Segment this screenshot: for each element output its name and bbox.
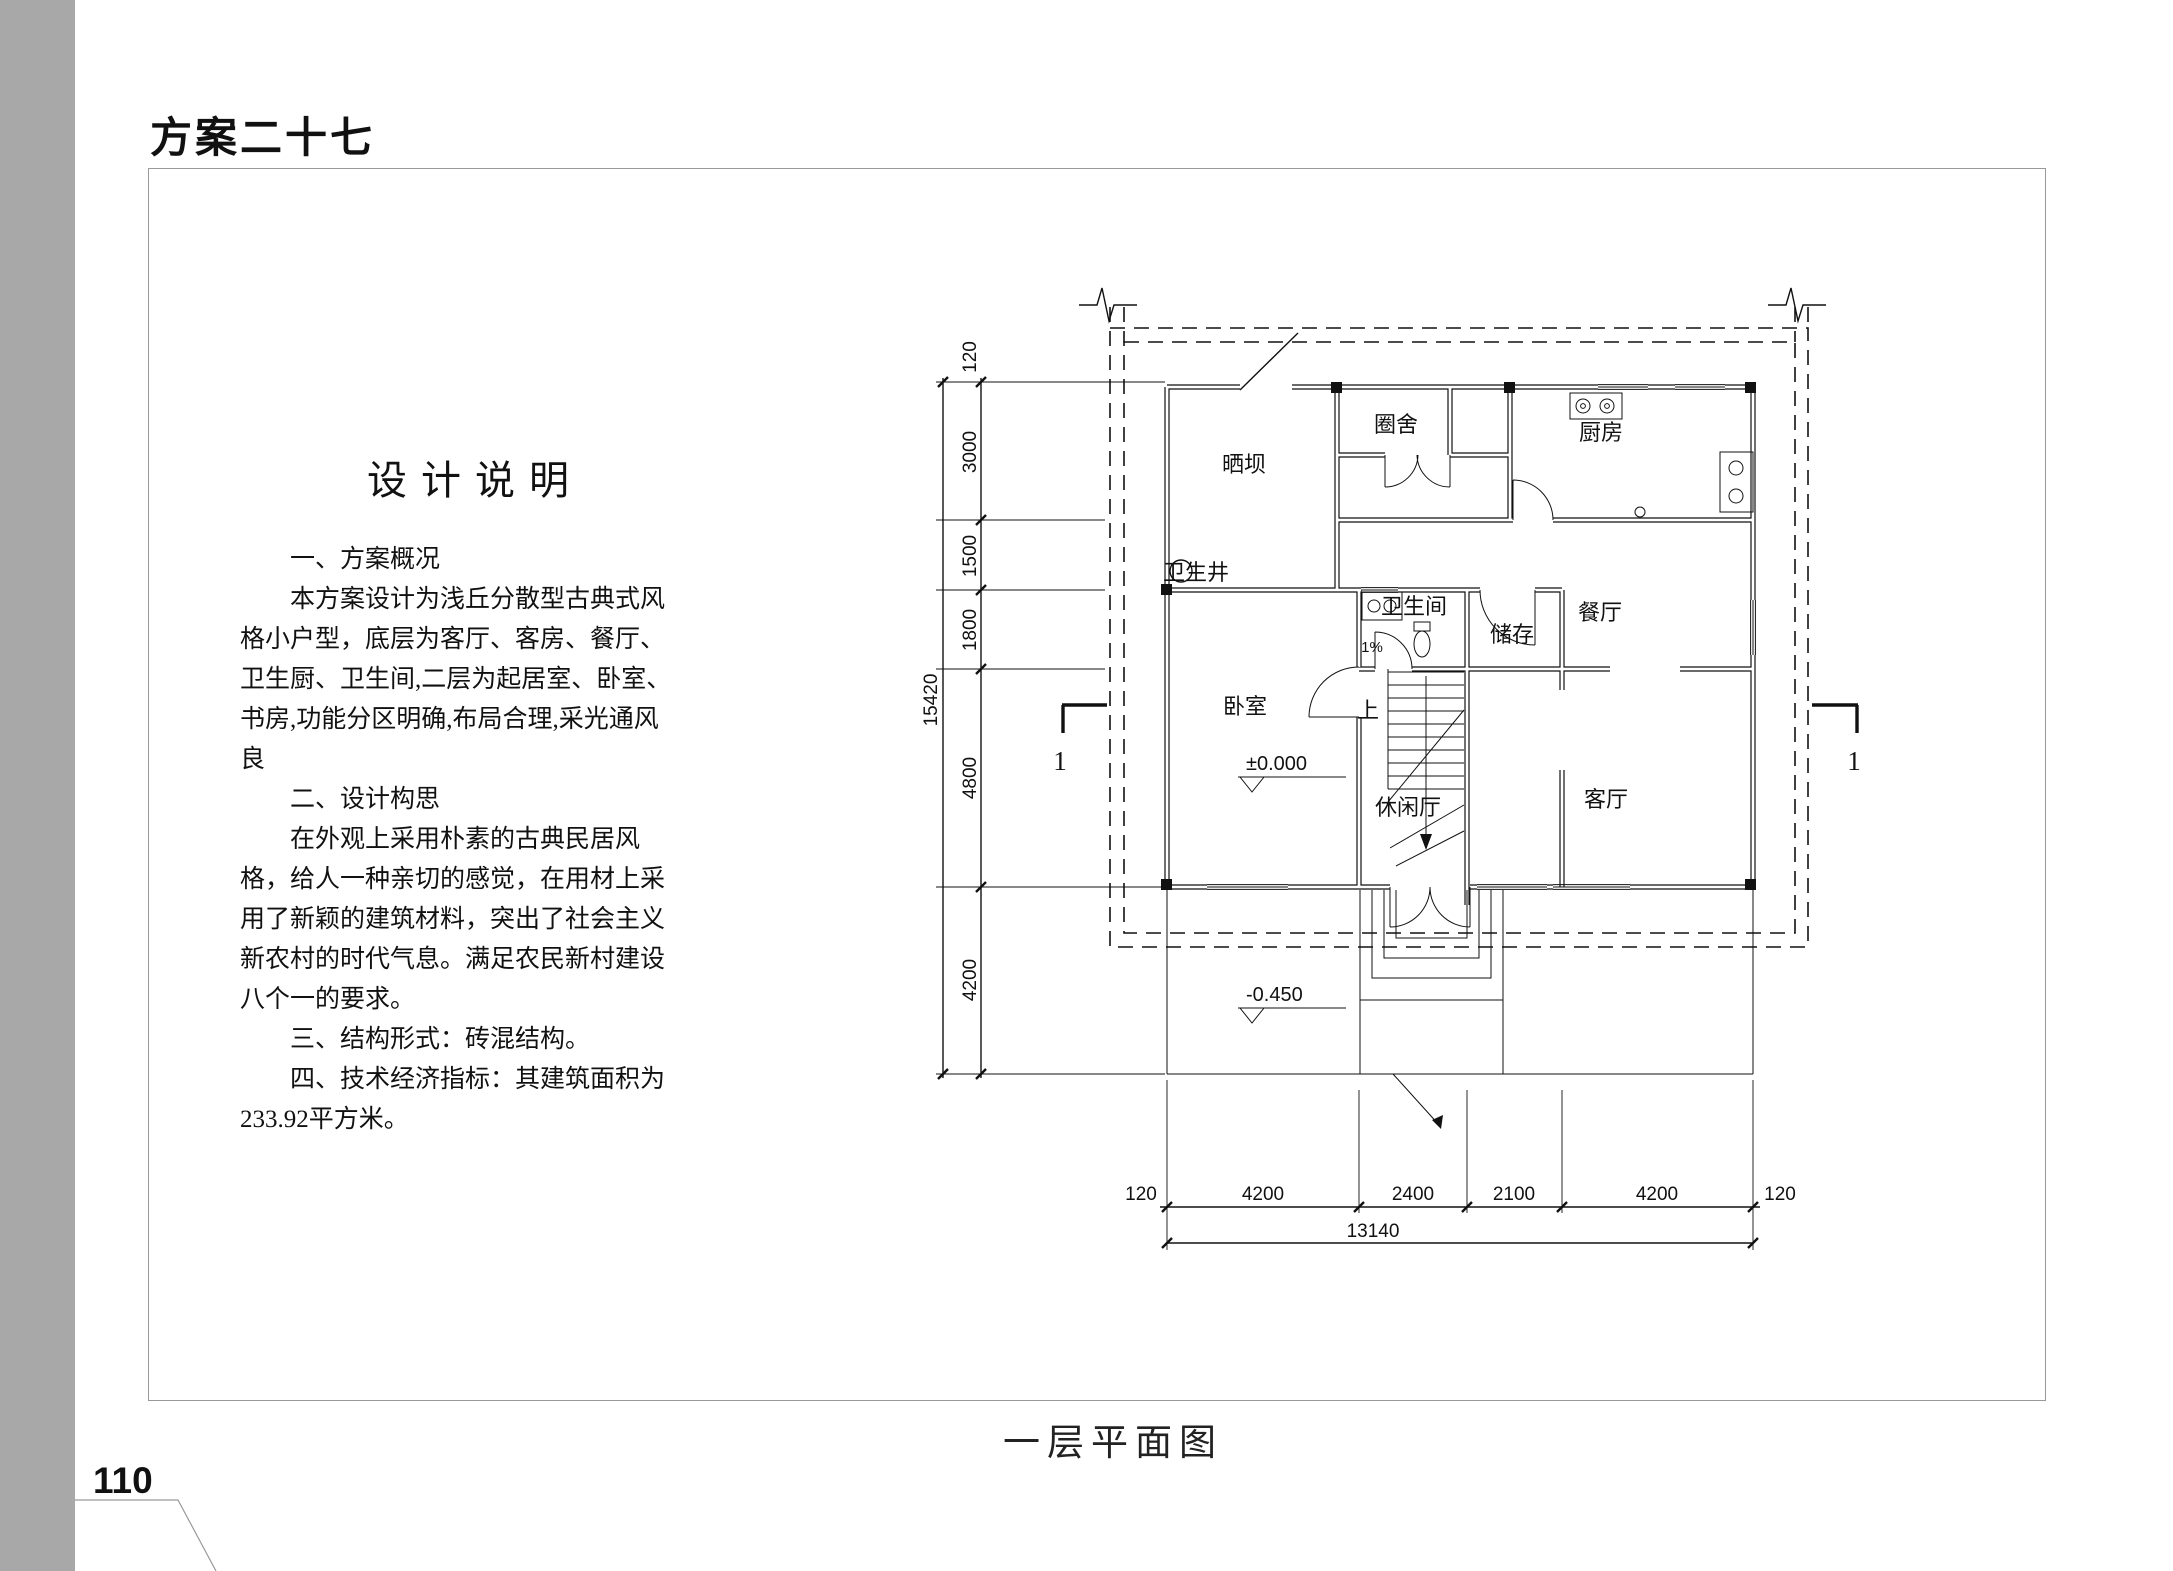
- slope-label: 1%: [1361, 639, 1383, 656]
- svg-text:15420: 15420: [921, 674, 942, 727]
- design-notes-line: 新农村的时代气息。满足农民新村建设: [240, 940, 710, 980]
- site-boundary-dashed: [1110, 307, 1808, 947]
- section-mark-right: 1: [1812, 705, 1861, 776]
- window-symbols: [1207, 385, 1755, 890]
- design-notes-line: 四、技术经济指标：其建筑面积为: [240, 1060, 710, 1100]
- room-label-bedroom: 卧室: [1223, 694, 1267, 719]
- book-page: 方案二十七 设计说明 一、方案概况 本方案设计为浅丘分散型古典式风 格小户型，底…: [0, 0, 2173, 1571]
- toilet-icon: [1414, 622, 1430, 657]
- design-notes-line: 格小户型，底层为客厅、客房、餐厅、: [240, 620, 710, 660]
- svg-text:120: 120: [960, 341, 981, 373]
- room-label-living-room: 客厅: [1584, 787, 1628, 812]
- svg-text:120: 120: [1764, 1184, 1796, 1205]
- svg-text:4200: 4200: [960, 959, 981, 1001]
- room-label-drying-yard: 晒坝: [1222, 452, 1266, 477]
- level-mark-ground: ±0.000: [1238, 753, 1346, 792]
- svg-text:1500: 1500: [960, 535, 981, 577]
- design-notes-line: 三、结构形式：砖混结构。: [240, 1020, 710, 1060]
- design-notes-line: 书房,功能分区明确,布局合理,采光通风: [240, 700, 710, 740]
- break-mark-left-icon: [1079, 288, 1137, 321]
- door-swings: [1309, 455, 1553, 927]
- design-notes-line: 二、设计构思: [240, 780, 710, 820]
- svg-text:4800: 4800: [960, 757, 981, 799]
- svg-text:-0.450: -0.450: [1246, 984, 1303, 1006]
- svg-text:4200: 4200: [1636, 1184, 1678, 1205]
- stove-icon: [1570, 393, 1622, 419]
- break-mark-right-icon: [1768, 288, 1826, 321]
- room-label-kitchen: 厨房: [1579, 420, 1623, 445]
- svg-text:120: 120: [1125, 1184, 1157, 1205]
- design-notes-heading: 设计说明: [240, 448, 710, 506]
- floor-plan-drawing: ±0.000 -0.450 晒坝 圈舍 厨房 卫生井 卫生间 1% 储存 餐厅 …: [900, 260, 1900, 1300]
- figure-caption: 一层平面图: [1003, 1412, 1223, 1466]
- svg-text:2100: 2100: [1493, 1184, 1535, 1205]
- svg-text:13140: 13140: [1347, 1221, 1400, 1242]
- design-notes: 设计说明 一、方案概况 本方案设计为浅丘分散型古典式风 格小户型，底层为客厅、客…: [240, 448, 710, 1140]
- svg-text:1: 1: [1053, 746, 1067, 776]
- design-notes-line: 在外观上采用朴素的古典民居风: [240, 820, 710, 860]
- room-label-livestock-pen: 圈舍: [1374, 412, 1418, 437]
- page-title: 方案二十七: [150, 104, 375, 165]
- svg-text:1: 1: [1847, 746, 1861, 776]
- design-notes-line: 良: [240, 740, 710, 780]
- svg-text:3000: 3000: [960, 431, 981, 473]
- section-mark-left: 1: [1053, 705, 1107, 776]
- design-notes-line: 格，给人一种亲切的感觉，在用材上采: [240, 860, 710, 900]
- staircase: [1388, 669, 1464, 866]
- dimension-chain-left: 120 3000 1500 1800 4800 4200 15420: [921, 341, 1165, 1079]
- design-notes-line: 八个一的要求。: [240, 980, 710, 1020]
- design-notes-line: 233.92平方米。: [240, 1100, 710, 1140]
- svg-text:4200: 4200: [1242, 1184, 1284, 1205]
- kitchen-sink-icon: [1635, 452, 1753, 517]
- room-label-bathroom: 卫生间: [1381, 594, 1447, 619]
- design-notes-line: 用了新颖的建筑材料，突出了社会主义: [240, 900, 710, 940]
- room-label-sanitary-well: 卫生井: [1163, 560, 1229, 585]
- dimension-chain-bottom: 120 4200 2400 2100 4200 120 13140: [1125, 1080, 1796, 1250]
- design-notes-line: 本方案设计为浅丘分散型古典式风: [240, 580, 710, 620]
- room-label-leisure-hall: 休闲厅: [1375, 795, 1441, 820]
- level-mark-yard: -0.450: [1238, 984, 1346, 1023]
- svg-text:2400: 2400: [1392, 1184, 1434, 1205]
- page-edge-strip: [0, 0, 75, 1571]
- page-corner-decoration: [0, 1400, 300, 1571]
- stair-up-label: 上: [1357, 698, 1379, 723]
- room-label-dining: 餐厅: [1578, 600, 1622, 625]
- design-notes-line: 卫生厨、卫生间,二层为起居室、卧室、: [240, 660, 710, 700]
- room-label-storage: 储存: [1490, 622, 1534, 647]
- svg-text:±0.000: ±0.000: [1246, 753, 1307, 775]
- svg-text:1800: 1800: [960, 609, 981, 651]
- design-notes-line: 一、方案概况: [240, 540, 710, 580]
